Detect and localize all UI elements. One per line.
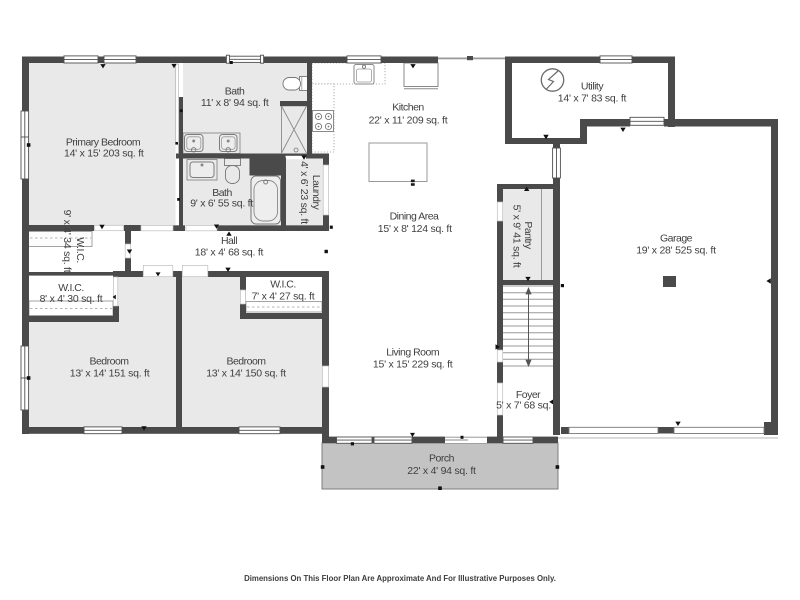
svg-text:Utility: Utility — [581, 81, 604, 93]
svg-text:5' x 9' 41 sq. ft: 5' x 9' 41 sq. ft — [511, 205, 523, 268]
svg-text:11' x 8' 94 sq. ft: 11' x 8' 94 sq. ft — [201, 97, 269, 109]
svg-text:Hall: Hall — [221, 235, 237, 247]
svg-text:19' x 28' 525 sq. ft: 19' x 28' 525 sq. ft — [636, 245, 716, 257]
svg-text:18' x 4' 68 sq. ft: 18' x 4' 68 sq. ft — [195, 247, 264, 259]
svg-text:Dimensions On This Floor Plan: Dimensions On This Floor Plan Are Approx… — [244, 574, 556, 583]
svg-text:9' x 4' 34 sq. ft: 9' x 4' 34 sq. ft — [61, 210, 73, 273]
svg-text:4' x 6' 23 sq. ft: 4' x 6' 23 sq. ft — [298, 161, 310, 224]
svg-text:Laundry: Laundry — [310, 175, 322, 211]
svg-text:Pantry: Pantry — [522, 221, 534, 250]
svg-text:5' x 7' 68 sq. ft: 5' x 7' 68 sq. ft — [496, 400, 559, 412]
svg-text:W.I.C.: W.I.C. — [270, 279, 296, 291]
svg-text:Living Room: Living Room — [386, 346, 440, 358]
svg-text:22' x 11' 209 sq. ft: 22' x 11' 209 sq. ft — [369, 115, 448, 127]
svg-text:Garage: Garage — [660, 233, 693, 245]
svg-text:Bedroom: Bedroom — [89, 356, 129, 368]
svg-text:Kitchen: Kitchen — [392, 102, 424, 114]
svg-text:14' x 15' 203 sq. ft: 14' x 15' 203 sq. ft — [64, 147, 144, 159]
svg-text:Dining Area: Dining Area — [390, 211, 439, 223]
svg-text:9' x 6' 55 sq. ft: 9' x 6' 55 sq. ft — [190, 198, 253, 210]
svg-text:7' x 4' 27 sq. ft: 7' x 4' 27 sq. ft — [252, 291, 315, 303]
svg-text:Bedroom: Bedroom — [226, 356, 266, 368]
svg-text:13' x 14' 150 sq. ft: 13' x 14' 150 sq. ft — [206, 368, 286, 380]
svg-text:22' x 4' 94 sq. ft: 22' x 4' 94 sq. ft — [407, 465, 476, 477]
svg-text:15' x 8' 124 sq. ft: 15' x 8' 124 sq. ft — [378, 223, 452, 235]
svg-text:Bath: Bath — [225, 85, 245, 97]
svg-text:15' x 15' 229 sq. ft: 15' x 15' 229 sq. ft — [373, 359, 453, 371]
svg-text:8' x 4' 30 sq. ft: 8' x 4' 30 sq. ft — [40, 293, 103, 305]
svg-text:Porch: Porch — [429, 453, 455, 465]
svg-text:13' x 14' 151 sq. ft: 13' x 14' 151 sq. ft — [70, 368, 150, 380]
svg-text:14' x 7' 83 sq. ft: 14' x 7' 83 sq. ft — [558, 92, 627, 104]
svg-text:W.I.C.: W.I.C. — [74, 237, 86, 263]
